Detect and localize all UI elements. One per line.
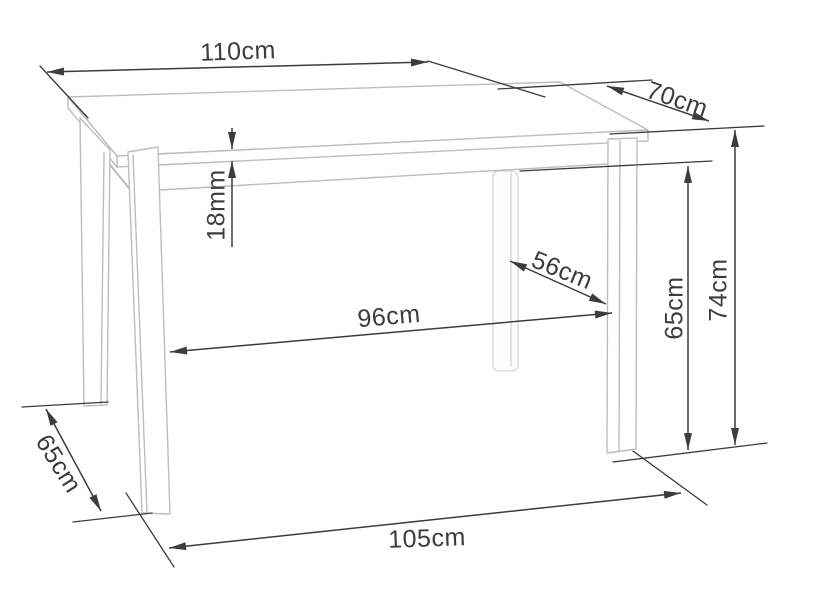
- dim-label-legs-gap-width: 96cm: [356, 302, 421, 332]
- rear-right-leg-outline: [493, 171, 518, 371]
- rear-right-leg: [493, 171, 518, 371]
- table-line-art: [68, 82, 648, 514]
- diagram-canvas: 110cm 70cm 18mm 56cm 96cm 65cm 74cm 65cm…: [0, 0, 815, 611]
- dim-label-floor-width-span: 105cm: [388, 525, 466, 553]
- front-right-leg: [607, 138, 637, 453]
- front-right-leg-outline: [607, 138, 637, 453]
- dim-label-tabletop-thickness: 18mm: [205, 169, 230, 240]
- front-right-leg-edge: [619, 141, 620, 451]
- rear-left-leg-outline: [80, 118, 110, 406]
- ext-tabletop-left-corner: [40, 66, 88, 118]
- front-left-leg: [128, 147, 170, 514]
- dim-label-tabletop-width: 110cm: [200, 38, 277, 66]
- dim-label-clearance-height: 65cm: [663, 276, 688, 339]
- dim-label-overall-height: 74cm: [707, 258, 732, 321]
- rear-left-leg: [80, 118, 110, 406]
